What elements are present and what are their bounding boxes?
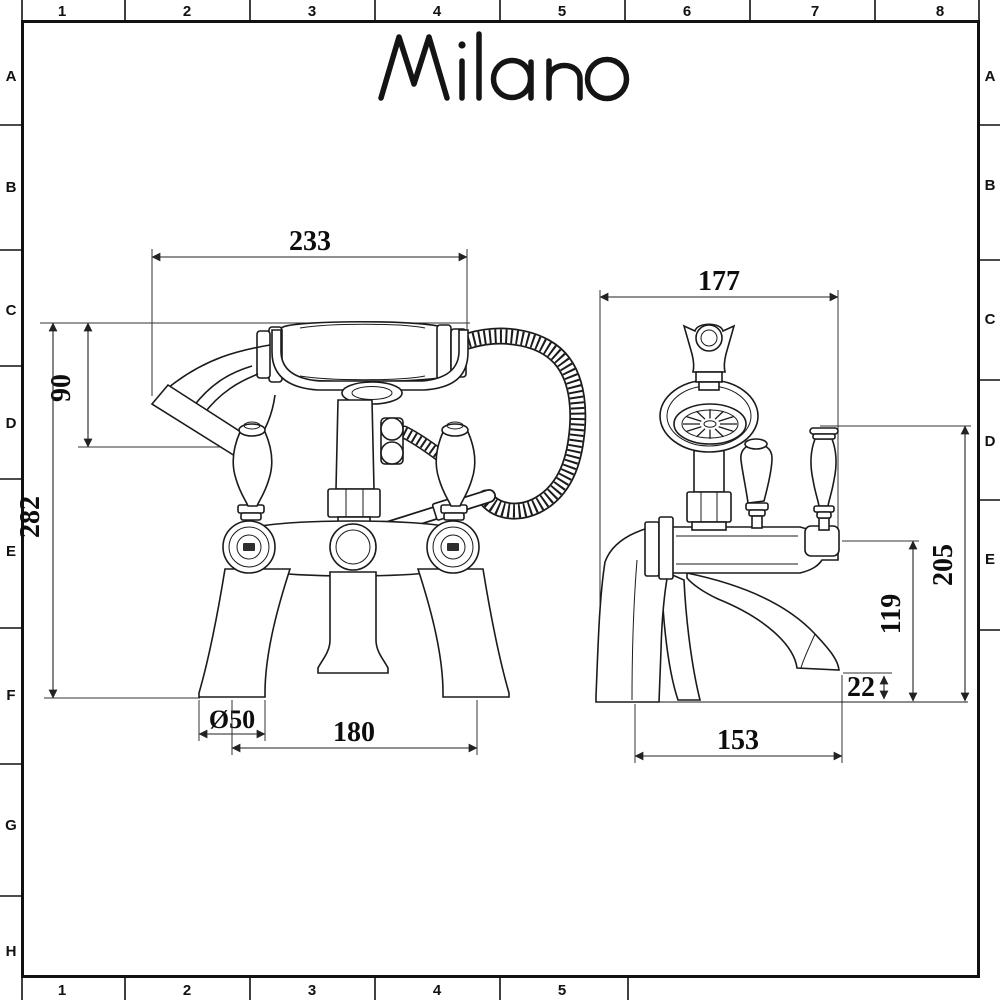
dim-base-depth: 153 — [717, 725, 759, 756]
logo-letter-i-dot — [458, 41, 465, 48]
grid-label: 6 — [683, 3, 691, 20]
grid-label: E — [6, 543, 16, 560]
grid-label: A — [6, 68, 17, 85]
dim-spout-height: 119 — [876, 594, 907, 634]
dim-handset-height: 90 — [46, 374, 77, 402]
diverter-escutcheon — [330, 524, 376, 570]
grid-top-labels: 1 2 3 4 5 6 7 8 — [58, 3, 944, 20]
cold-lever — [436, 432, 475, 506]
grid-label: 3 — [308, 3, 316, 20]
side-rear-leg — [661, 570, 700, 700]
grid-label: B — [985, 177, 996, 194]
left-leg — [199, 569, 290, 697]
handset-grip — [271, 322, 456, 382]
side-far-lever — [741, 439, 772, 528]
logo-letter-M — [381, 37, 447, 98]
grid-label: 5 — [558, 982, 566, 999]
side-near-lever — [805, 428, 839, 556]
riser-column — [328, 400, 380, 529]
grid-label: D — [985, 433, 996, 450]
cold-indicator — [447, 543, 459, 551]
border-rect — [23, 22, 979, 977]
grid-label: 4 — [433, 982, 442, 999]
grid-label: E — [985, 551, 995, 568]
grid-label: H — [6, 943, 17, 960]
dim-handset-span: 233 — [289, 226, 331, 257]
logo-letter-a-bowl — [494, 61, 531, 98]
dim-overall-depth: 177 — [698, 266, 740, 297]
centre-spout-leg — [318, 572, 388, 673]
right-leg — [418, 569, 509, 697]
grid-label: A — [985, 68, 996, 85]
side-riser — [687, 450, 731, 530]
grid-label: C — [985, 311, 996, 328]
grid-bottom-labels: 1 2 3 4 5 — [58, 982, 566, 999]
technical-drawing: 1 2 3 4 5 6 7 8 1 2 3 4 5 — [0, 0, 1000, 1000]
front-view-faucet — [152, 322, 578, 697]
grid-label: B — [6, 179, 17, 196]
grid-label: 2 — [183, 982, 191, 999]
side-view-faucet — [596, 324, 839, 702]
dim-tap-centres: 180 — [333, 717, 375, 748]
grid-label: 1 — [58, 3, 66, 20]
logo-letter-o — [588, 60, 627, 99]
grid-label: C — [6, 302, 17, 319]
side-body-flange — [645, 522, 659, 576]
side-spout — [687, 573, 839, 670]
mounting-legs — [199, 569, 509, 697]
logo-letter-n — [549, 61, 580, 98]
grid-right-labels: A B C D E — [985, 68, 996, 568]
grid-label: 1 — [58, 982, 66, 999]
grid-label: F — [6, 687, 15, 704]
dim-side-overall-height: 205 — [928, 544, 959, 586]
grid-label: 7 — [811, 3, 819, 20]
grid-label: G — [5, 817, 17, 834]
grid-label: 2 — [183, 3, 191, 20]
side-cradle-fork — [684, 324, 734, 390]
hose-elbow — [381, 418, 403, 464]
grid-label: 3 — [308, 982, 316, 999]
valve-escutcheons — [223, 521, 479, 573]
grid-label: D — [6, 415, 17, 432]
hot-indicator — [243, 543, 255, 551]
dim-overall-height: 282 — [15, 496, 46, 538]
side-hex-nut — [687, 492, 731, 522]
hot-lever — [233, 432, 272, 506]
grid-bottom-ticks — [22, 977, 628, 1000]
dim-spout-overhang: 22 — [847, 672, 875, 703]
grid-label: 4 — [433, 3, 442, 20]
column-hex-nut — [328, 489, 380, 517]
grid-label: 5 — [558, 3, 566, 20]
grid-top-ticks — [22, 0, 979, 21]
grid-label: 8 — [936, 3, 944, 20]
brand-logo: Milano — [381, 34, 627, 99]
